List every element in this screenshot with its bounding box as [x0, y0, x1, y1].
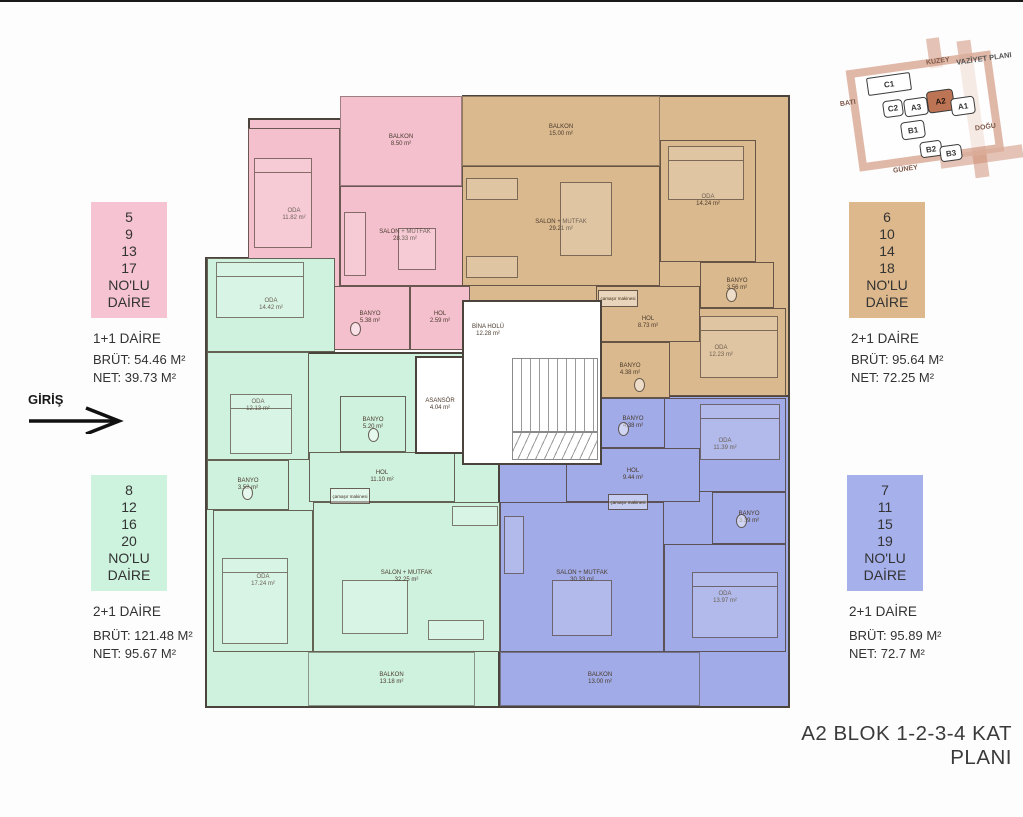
toilet-icon [350, 322, 361, 336]
green-type-label: 2+1 DAİRE [93, 604, 161, 619]
green-banyo2-room: BANYO3.52 m² [207, 460, 289, 510]
bed-icon [668, 146, 744, 200]
toilet-icon [368, 428, 379, 442]
blue-balkon-room: BALKON13.00 m² [500, 652, 700, 706]
entrance-arrow-icon [26, 404, 126, 434]
blue-net-label: NET: 72.7 M² [849, 646, 925, 661]
staircase-winder [512, 432, 598, 460]
green-brut-label: BRÜT: 121.48 M² [93, 628, 193, 643]
tan-washing-machine: çamaşır makinesi [598, 290, 638, 307]
green-net-label: NET: 95.67 M² [93, 646, 176, 661]
dining-table-icon [398, 228, 436, 270]
site-plan-block-a3: A3 [903, 96, 929, 117]
toilet-icon [242, 486, 253, 500]
green-balkon-room: BALKON13.18 m² [308, 652, 475, 706]
dining-table-icon [342, 580, 408, 634]
dining-table-icon [552, 580, 612, 636]
tan-legend-box: 6 10 14 18 NO'LU DAİRE [849, 202, 925, 318]
bed-icon [254, 158, 312, 248]
top-border-line [0, 0, 1023, 2]
sofa-icon [428, 620, 484, 640]
blue-type-label: 2+1 DAİRE [849, 604, 917, 619]
toilet-icon [736, 514, 747, 528]
dining-table-icon [560, 182, 612, 256]
site-plan-block-b1: B1 [900, 119, 926, 140]
site-plan-block-b3: B3 [939, 144, 963, 163]
green-legend-box: 8 12 16 20 NO'LU DAİRE [91, 475, 167, 591]
toilet-icon [618, 422, 629, 436]
sofa-icon [504, 516, 524, 574]
staircase [512, 358, 598, 432]
green-banyo1-room: BANYO5.20 m² [340, 396, 406, 452]
pink-balkon-room: BALKON8.50 m² [340, 96, 462, 186]
tan-net-label: NET: 72.25 M² [851, 370, 934, 385]
toilet-icon [726, 288, 737, 302]
pink-legend-box: 5 9 13 17 NO'LU DAİRE [91, 202, 167, 318]
tan-balkon-room: BALKON15.00 m² [462, 96, 660, 166]
pink-banyo-room: BANYO5.38 m² [330, 286, 410, 350]
tan-brut-label: BRÜT: 95.64 M² [851, 352, 943, 367]
tan-banyo-room: BANYO4.38 m² [590, 342, 670, 398]
tan-banyo-small-room: BANYO3.56 m² [700, 262, 774, 308]
bed-icon [222, 558, 288, 644]
toilet-icon [634, 378, 645, 392]
sofa-icon [452, 506, 498, 526]
pink-net-label: NET: 39.73 M² [93, 370, 176, 385]
pink-type-label: 1+1 DAİRE [93, 331, 161, 346]
bed-icon [692, 572, 778, 638]
sofa-icon [344, 212, 366, 276]
sofa-icon [466, 256, 518, 278]
tan-type-label: 2+1 DAİRE [851, 331, 919, 346]
green-washing-machine: çamaşır makinesi [330, 488, 370, 504]
site-plan-block-c2: C2 [882, 99, 904, 119]
floor-plan-canvas: BALKON8.50 m² ODA11.82 m² SALON + MUTFAK… [0, 0, 1023, 817]
pink-hol-room: HOL2.59 m² [410, 286, 470, 350]
blue-brut-label: BRÜT: 95.89 M² [849, 628, 941, 643]
site-plan-block-a1: A1 [950, 95, 976, 116]
blue-legend-box: 7 11 15 19 NO'LU DAİRE [847, 475, 923, 591]
elevator-room: ASANSÖR4.04 m² [415, 356, 465, 454]
plan-title: A2 BLOK 1-2-3-4 KAT PLANI [742, 722, 1012, 770]
bed-icon [700, 404, 780, 460]
bed-icon [216, 262, 304, 318]
pink-brut-label: BRÜT: 54.46 M² [93, 352, 185, 367]
sofa-icon [466, 178, 518, 200]
blue-banyo1-room: BANYO4.38 m² [596, 398, 670, 448]
bed-icon [230, 394, 292, 454]
blue-banyo2-room: BANYO3.39 m² [712, 492, 786, 544]
blue-washing-machine: çamaşır makinesi [608, 494, 648, 510]
bed-icon [700, 316, 778, 378]
